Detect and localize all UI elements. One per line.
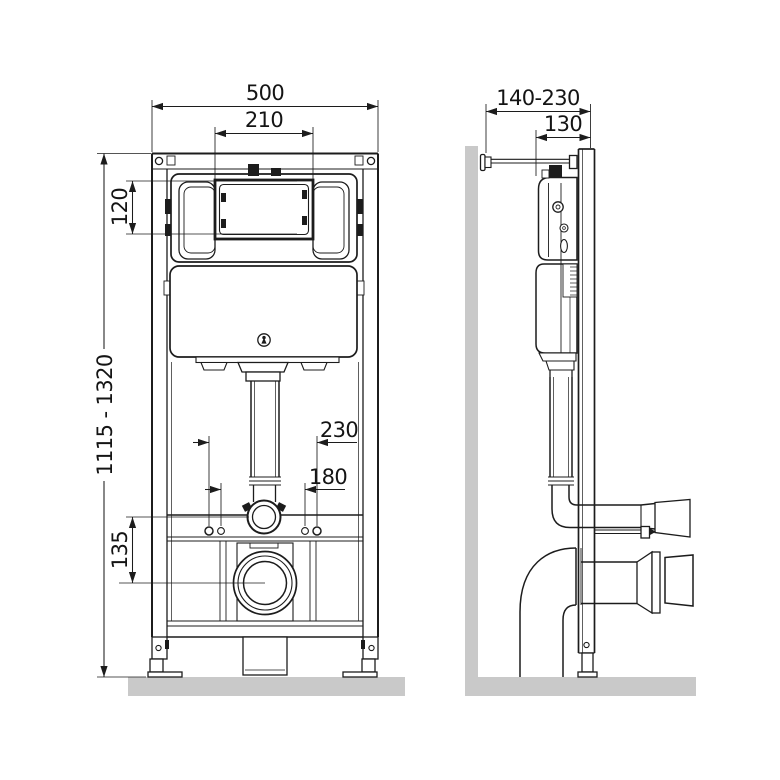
flush-plate-opening	[215, 180, 313, 239]
waste-pipe-side	[520, 548, 693, 677]
corner-screw-right-icon	[367, 157, 374, 164]
wall-side-view	[465, 146, 478, 677]
dim-opening-width: 210	[215, 108, 313, 179]
dim-frame-depth-label: 130	[544, 112, 582, 136]
dim-frame-height: 1115 - 1320	[93, 154, 151, 678]
wall-anchor-rod	[481, 155, 578, 171]
cistern-side	[536, 165, 577, 377]
water-inlet-connector-icon	[248, 164, 259, 176]
waste-connector-flare	[637, 552, 652, 613]
toothed-bracket	[563, 264, 577, 297]
dim-opening-height-label: 120	[108, 188, 132, 226]
corner-screw-left-icon	[155, 157, 162, 164]
brand-emblem-icon	[258, 334, 270, 346]
side-view: 140-230 130	[481, 86, 694, 677]
flush-pipe-side	[548, 377, 690, 538]
dim-outer-fixing-label: 230	[320, 418, 358, 442]
dim-opening-width-label: 210	[245, 108, 283, 132]
front-view: 500 210 120 1115 - 1320	[93, 81, 378, 677]
technical-drawing-page: 500 210 120 1115 - 1320	[0, 0, 780, 780]
dim-outlet-drop-label: 135	[108, 531, 132, 569]
dim-frame-height-label: 1115 - 1320	[93, 354, 117, 475]
post-foot-plate	[578, 672, 597, 677]
dim-frame-width-label: 500	[246, 81, 284, 105]
post-foot-stem	[582, 653, 593, 672]
dim-depth-range-label: 140-230	[496, 86, 580, 110]
concealed-cistern	[164, 164, 364, 381]
waste-outlet-front	[234, 543, 297, 675]
flush-connector-sleeve	[655, 500, 690, 538]
wc-installation-frame-drawing: 500 210 120 1115 - 1320	[0, 0, 780, 780]
waste-connector-sleeve	[665, 555, 693, 606]
flush-pipe-front	[242, 381, 286, 534]
floor-front-view	[128, 677, 405, 696]
inlet-connector-icon	[549, 165, 562, 178]
dim-inner-fixing-label: 180	[309, 465, 347, 489]
floor-side-view	[465, 677, 696, 696]
